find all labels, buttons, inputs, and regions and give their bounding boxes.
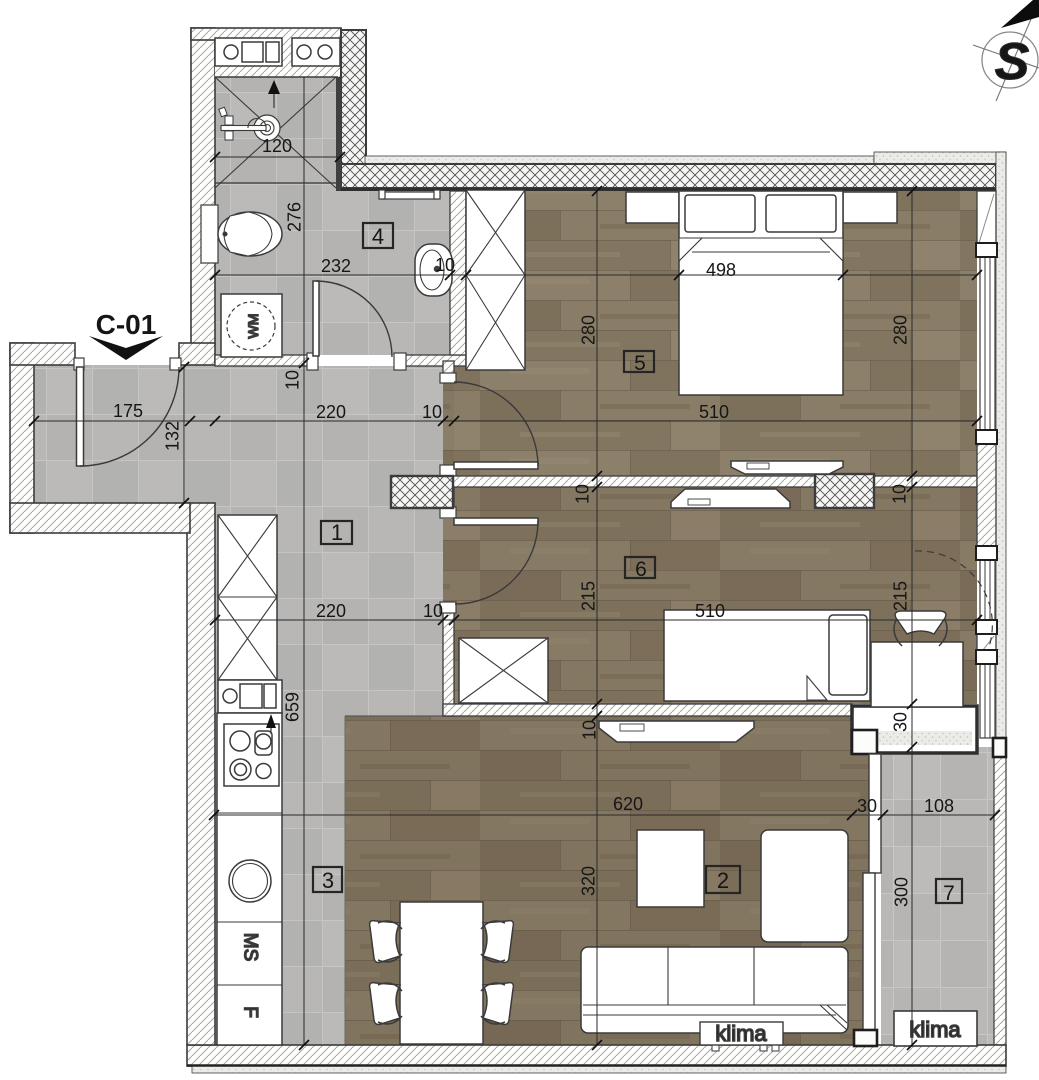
svg-text:215: 215: [579, 581, 599, 611]
svg-text:120: 120: [262, 136, 292, 156]
svg-text:5: 5: [634, 352, 646, 375]
svg-text:232: 232: [321, 256, 351, 276]
svg-text:F: F: [240, 1006, 261, 1018]
svg-text:6: 6: [635, 558, 647, 581]
svg-text:320: 320: [579, 866, 599, 896]
svg-text:WM: WM: [245, 314, 261, 339]
svg-text:510: 510: [699, 402, 729, 422]
svg-text:10: 10: [423, 601, 443, 621]
svg-text:7: 7: [943, 882, 955, 905]
svg-text:132: 132: [163, 421, 183, 451]
svg-text:280: 280: [891, 315, 911, 345]
svg-text:10: 10: [580, 720, 600, 740]
svg-text:175: 175: [113, 401, 143, 421]
svg-text:1: 1: [331, 520, 343, 545]
svg-text:10: 10: [435, 255, 455, 275]
svg-text:30: 30: [891, 712, 911, 732]
svg-text:498: 498: [706, 260, 736, 280]
svg-text:C-01: C-01: [96, 309, 157, 340]
svg-text:659: 659: [283, 692, 303, 722]
svg-text:30: 30: [857, 796, 877, 816]
svg-text:280: 280: [579, 315, 599, 345]
svg-text:3: 3: [322, 868, 334, 893]
svg-text:4: 4: [372, 224, 384, 249]
svg-text:510: 510: [695, 601, 725, 621]
svg-text:10: 10: [283, 370, 303, 390]
svg-text:300: 300: [892, 877, 912, 907]
svg-text:620: 620: [613, 794, 643, 814]
svg-text:2: 2: [717, 868, 729, 893]
svg-text:215: 215: [891, 581, 911, 611]
svg-text:klima: klima: [909, 1017, 961, 1042]
svg-text:276: 276: [285, 202, 305, 232]
svg-text:220: 220: [316, 402, 346, 422]
svg-text:klima: klima: [715, 1021, 767, 1046]
svg-text:MS: MS: [240, 933, 261, 962]
svg-text:S: S: [995, 33, 1030, 91]
svg-text:10: 10: [573, 484, 593, 504]
svg-text:220: 220: [316, 601, 346, 621]
svg-text:10: 10: [890, 484, 910, 504]
svg-text:108: 108: [924, 796, 954, 816]
svg-text:10: 10: [422, 402, 442, 422]
